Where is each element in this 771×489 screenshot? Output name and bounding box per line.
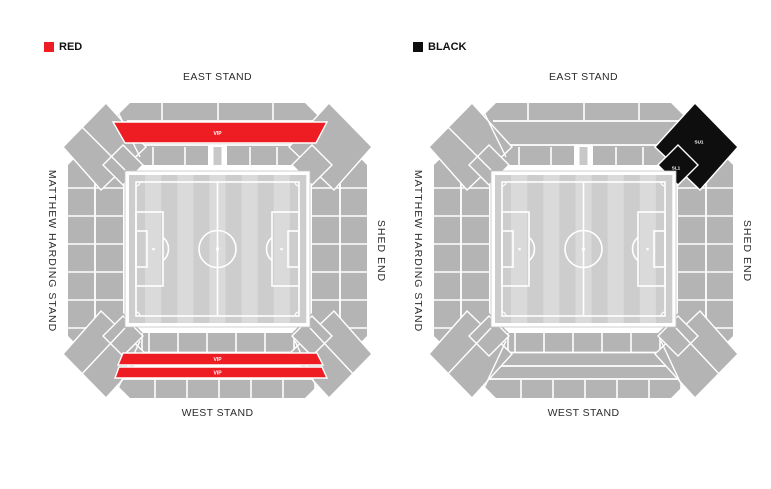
tunnel-section [580, 147, 588, 165]
section-label-shed-end-corner-lower: SL1 [672, 166, 681, 171]
stadium-svg-red: VIPVIPVIP [45, 62, 390, 439]
black-legend-label: BLACK [428, 41, 467, 53]
red-legend-swatch [44, 42, 54, 52]
black-legend-swatch [413, 42, 423, 52]
stadium-map-red: EAST STAND WEST STAND MATTHEW HARDING ST… [45, 62, 390, 439]
football-pitch [125, 171, 310, 327]
section-label-east-upper-vip: VIP [213, 131, 222, 137]
tunnel-section [214, 147, 222, 165]
legend-red: RED [44, 41, 82, 53]
stadium-svg-black: SU1SL1 [411, 62, 756, 439]
legend-black: BLACK [413, 41, 467, 53]
section-label-shed-end-corner-upper: SU1 [695, 140, 704, 145]
red-legend-label: RED [59, 41, 82, 53]
page: { "legend": { "red": { "label": "RED", "… [0, 0, 771, 489]
section-label-west-upper-vip-row2: VIP [213, 371, 222, 377]
football-pitch [491, 171, 676, 327]
stadium-map-black: EAST STAND WEST STAND MATTHEW HARDING ST… [411, 62, 756, 439]
section-label-west-upper-vip-row1: VIP [213, 357, 222, 363]
